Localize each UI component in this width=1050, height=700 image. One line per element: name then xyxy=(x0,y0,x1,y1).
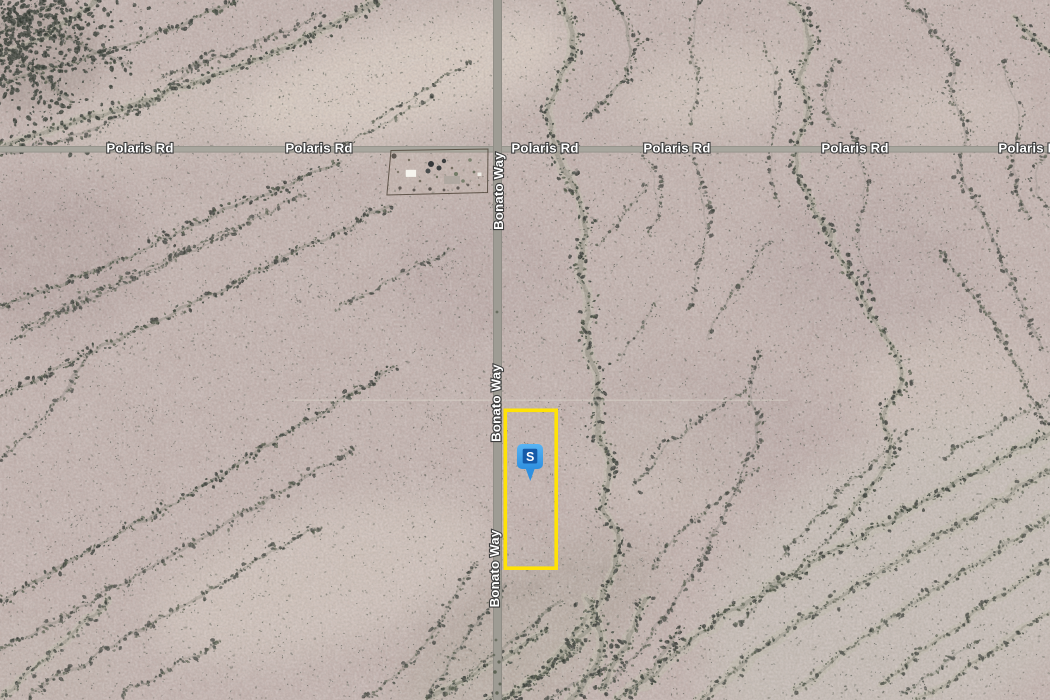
svg-text:Polaris Rd: Polaris Rd xyxy=(998,140,1050,155)
svg-text:Bonato Way: Bonato Way xyxy=(487,529,502,607)
svg-text:Bonato Way: Bonato Way xyxy=(489,364,504,442)
svg-text:Polaris Rd: Polaris Rd xyxy=(511,140,578,155)
svg-text:Polaris Rd: Polaris Rd xyxy=(106,140,173,155)
svg-text:Polaris Rd: Polaris Rd xyxy=(285,140,352,155)
svg-text:S: S xyxy=(526,450,534,464)
svg-text:Polaris Rd: Polaris Rd xyxy=(643,140,710,155)
svg-text:Bonato Way: Bonato Way xyxy=(491,152,506,230)
svg-text:Polaris Rd: Polaris Rd xyxy=(821,140,888,155)
